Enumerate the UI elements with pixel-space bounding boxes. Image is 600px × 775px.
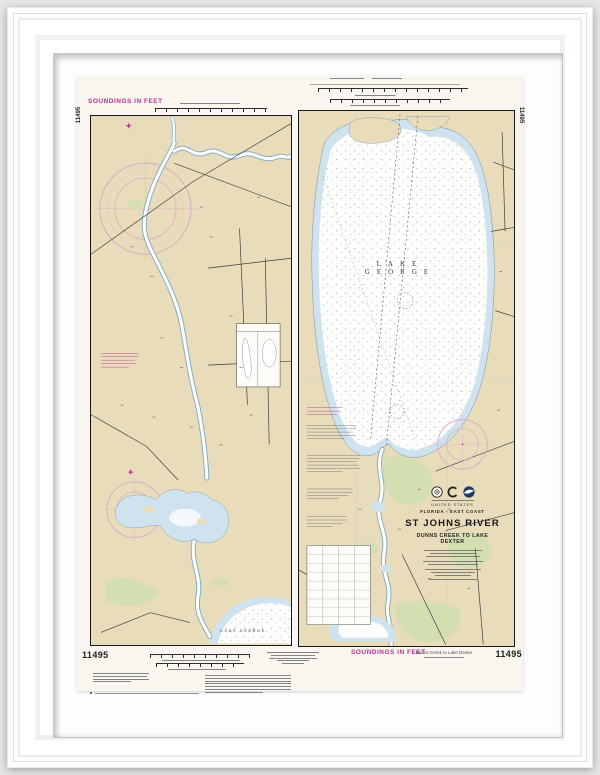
agency-logos [404,486,501,498]
projection-notes-lines [404,550,501,580]
chart-subtitle: DUNNS CREEK TO LAKE DEXTER [404,533,501,545]
margin-chart-number-left: 11495 [76,102,82,128]
coast-survey-logo-icon [447,486,459,498]
country-label: UNITED STATES [404,503,501,507]
soundings-note-top: SOUNDINGS IN FEET [88,98,163,105]
lake-george-label-small: LAKE GEORGE [214,628,272,633]
title-block: UNITED STATES FLORIDA - EAST COAST ST JO… [404,486,501,579]
edition-note: Dunns Creek to Lake Dexter [408,650,480,657]
chart-number-bottom-left: 11495 [82,650,109,660]
noaa-logo-icon [463,486,475,498]
region-label: FLORIDA - EAST COAST [404,509,501,514]
lake-george-label: LAKE GEORGE [345,260,455,276]
left-chart-panel [90,115,292,646]
commerce-seal-icon [431,486,443,498]
chart-title: ST JOHNS RIVER [404,518,501,529]
chart-number-bottom-right: 11495 [492,649,522,659]
edition-note-text: Dunns Creek to Lake Dexter [416,650,473,655]
st-johns-river-map [91,116,291,645]
tabulation-table [307,545,370,624]
margin-chart-number-right: 11495 [518,102,524,128]
inset-extension-box [237,324,281,387]
photo-background: SOUNDINGS IN FEET 11495 11495 LAKE GEORG… [0,0,600,775]
